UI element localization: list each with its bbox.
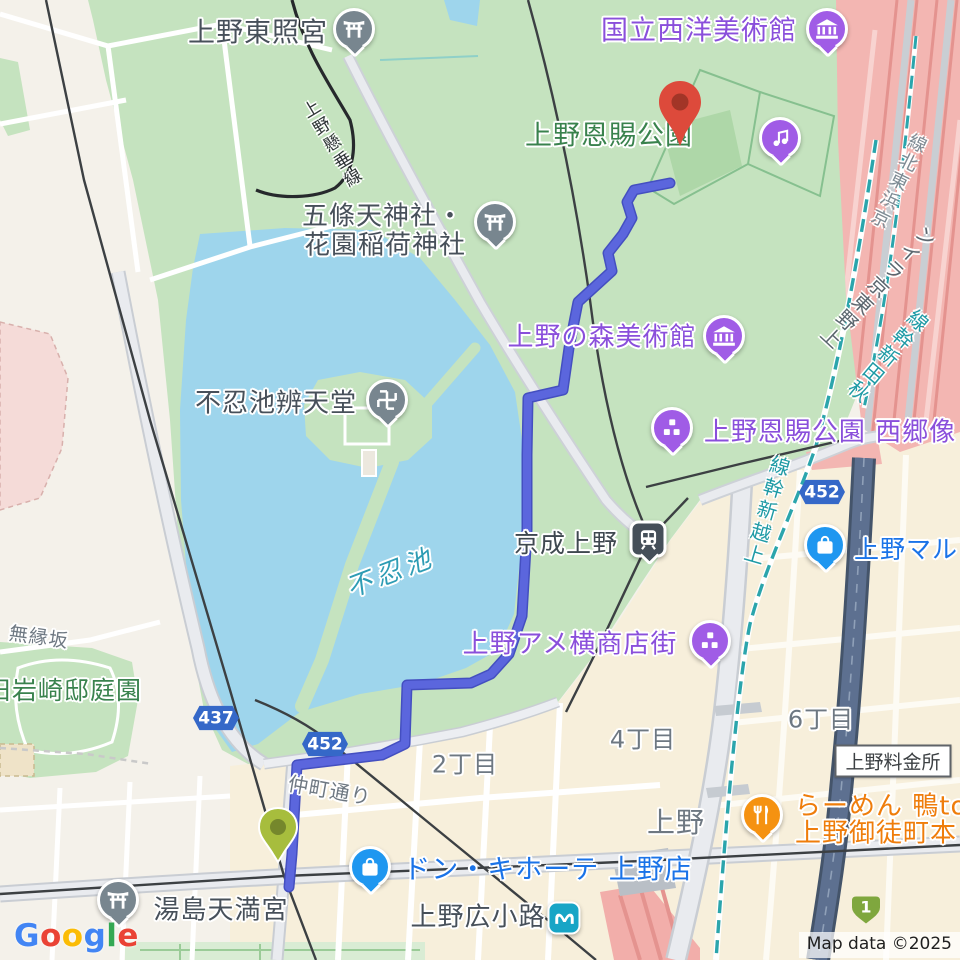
saigo-statue-pin[interactable] [651,407,693,449]
ramen-restaurant-pin[interactable] [741,794,783,836]
ueno-tollgate-label: 上野料金所 [834,745,951,778]
shopping-bag-icon [357,854,383,880]
seiyo-museum-label[interactable]: 国立西洋美術館 [601,9,797,48]
district-2chome: 2丁目 [432,745,498,780]
kyu-iwasaki-label[interactable]: 旧岩崎邸庭園 [0,671,142,707]
bentendo-temple-pin[interactable] [366,379,408,421]
district-4chome: 4丁目 [610,720,676,755]
google-logo[interactable]: Google [14,918,139,954]
museum-icon [814,16,840,42]
route-437-shield: 437 [193,705,239,732]
torii-icon [105,887,131,913]
mori-museum-label[interactable]: 上野の森美術館 [507,317,696,354]
music-note-icon [767,125,793,151]
don-quijote-label[interactable]: ドン・キホーテ 上野店 [403,848,693,887]
keisei-ueno-station-pin[interactable] [630,521,667,558]
route-452-shield-west: 452 [302,731,348,758]
restaurant-utensils-icon [749,802,775,828]
mori-museum-pin[interactable] [703,315,745,357]
manji-temple-icon [374,387,400,413]
ramen-label-line2[interactable]: 上野御徒町本 [795,813,957,850]
yushima-shrine-pin[interactable] [97,879,139,921]
ameyoko-pin[interactable] [689,620,731,662]
start-pin-icon [255,806,301,864]
gojoten-shrine-pin[interactable] [474,201,516,243]
gojoten-label-line2[interactable]: 花園稲荷神社 [304,225,466,262]
seiyo-museum-pin[interactable] [806,8,848,50]
shopping-bag-icon [812,532,838,558]
destination-pin-icon [656,79,704,153]
ameyoko-label[interactable]: 上野アメ横商店街 [463,624,678,661]
ueno-toshogu-pin[interactable] [333,8,375,50]
ueno-hirokoji-label[interactable]: 上野広小路 [410,897,545,934]
expressway-1-number: 1 [849,898,883,917]
landmark-blocks-icon [659,415,685,441]
metro-m-icon [551,905,577,931]
ueno-marui-shopping-pin[interactable] [804,524,846,566]
music-venue-pin[interactable] [759,117,801,159]
saigo-statue-label[interactable]: 上野恩賜公園 西郷像 [704,412,956,449]
yushima-tenmangu-label[interactable]: 湯島天満宮 [153,890,288,927]
torii-icon [482,209,508,235]
train-icon [635,526,661,552]
bentendo-label[interactable]: 不忍池辨天堂 [195,383,357,420]
expressway-1-shield: 1 [849,895,883,926]
ueno-marui-label[interactable]: 上野マル [854,530,958,566]
museum-icon [711,323,737,349]
keisei-ueno-label[interactable]: 京成上野 [514,524,618,560]
route-452-shield-east: 452 [799,479,845,506]
district-6chome: 6丁目 [788,700,854,735]
landmark-blocks-icon [697,628,723,654]
map-attribution: Map data ©2025 [799,932,960,958]
destination-pin[interactable] [656,79,704,157]
ueno-toshogu-label[interactable]: 上野東照宮 [188,11,328,50]
district-ueno: 上野 [647,801,705,841]
don-quijote-shopping-pin[interactable] [349,846,391,888]
start-pin[interactable] [255,806,301,868]
google-logo-letter: G [14,918,40,954]
tokyo-metro-station-pin[interactable] [548,902,581,935]
map-canvas[interactable]: 不忍池 無縁坂 仲町通り 2丁目 4丁目 6丁目 上野 線北東浜京 ンイラ京東野… [0,0,960,960]
torii-icon [341,16,367,42]
